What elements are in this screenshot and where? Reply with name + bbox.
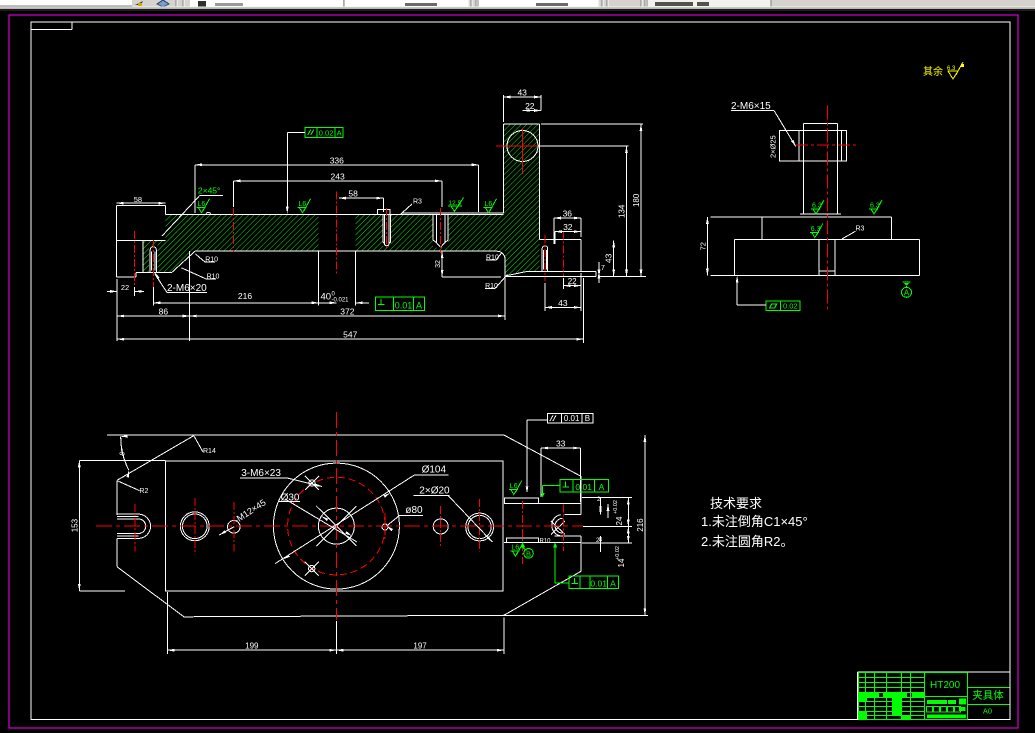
svg-text:B: B [585, 414, 590, 423]
svg-text:36: 36 [563, 209, 573, 219]
svg-text:-0.021: -0.021 [332, 298, 350, 304]
svg-text:547: 547 [343, 330, 357, 340]
svg-text:2×Ø25: 2×Ø25 [769, 135, 778, 158]
svg-text:43: 43 [604, 253, 614, 263]
svg-text:L6: L6 [198, 201, 206, 208]
svg-text:+0.02: +0.02 [615, 546, 621, 560]
svg-text:R10: R10 [540, 539, 552, 545]
svg-text:58: 58 [134, 195, 142, 204]
svg-text:2.未注圆角R2。: 2.未注圆角R2。 [701, 534, 793, 549]
svg-text:2×45°: 2×45° [198, 185, 221, 195]
svg-text:216: 216 [238, 291, 252, 301]
svg-text:33: 33 [556, 439, 566, 449]
svg-text:B: B [526, 550, 531, 559]
svg-text:R2: R2 [139, 488, 148, 495]
svg-text:243: 243 [331, 171, 345, 181]
svg-text:A: A [337, 129, 342, 138]
svg-text:0.01: 0.01 [590, 579, 607, 589]
svg-text:0.02: 0.02 [783, 302, 798, 311]
svg-text:R3: R3 [856, 226, 865, 233]
svg-text:A: A [599, 482, 605, 492]
svg-text:R3: R3 [413, 198, 422, 205]
svg-text:32: 32 [435, 260, 442, 268]
svg-text:336: 336 [330, 155, 344, 165]
svg-text:372: 372 [340, 307, 354, 317]
svg-text:HT200: HT200 [930, 680, 960, 691]
svg-text:+0.02: +0.02 [613, 500, 619, 514]
svg-text:2×Ø20: 2×Ø20 [419, 486, 450, 497]
svg-text:22: 22 [121, 283, 129, 292]
svg-text:43: 43 [517, 88, 527, 98]
svg-text:86: 86 [159, 307, 169, 317]
svg-text:A: A [416, 301, 422, 311]
svg-text:199: 199 [245, 642, 259, 651]
svg-text:A: A [904, 288, 910, 297]
svg-text:153: 153 [70, 518, 79, 532]
svg-text:0.01: 0.01 [395, 301, 413, 311]
svg-text:0.02: 0.02 [319, 129, 334, 138]
svg-text:其余: 其余 [923, 65, 943, 78]
svg-text:32: 32 [563, 222, 573, 232]
svg-text:58: 58 [348, 189, 358, 199]
svg-text:180: 180 [632, 193, 641, 207]
svg-text:22: 22 [568, 277, 577, 286]
svg-text:Ø104: Ø104 [422, 465, 447, 476]
svg-text:43: 43 [558, 298, 568, 308]
svg-text:L6: L6 [511, 545, 519, 552]
svg-text:夹具体: 夹具体 [972, 688, 1004, 701]
svg-text:1.未注倒角C1×45°: 1.未注倒角C1×45° [701, 514, 808, 529]
svg-text:134: 134 [618, 204, 627, 218]
svg-text:7: 7 [601, 265, 605, 272]
svg-text:技术要求: 技术要求 [710, 496, 762, 511]
svg-text:L6: L6 [299, 201, 307, 208]
svg-text:0.01: 0.01 [564, 414, 580, 423]
svg-text:216: 216 [636, 518, 645, 532]
svg-text:72: 72 [698, 242, 707, 250]
svg-text:ø80: ø80 [405, 505, 423, 516]
svg-text:R14: R14 [203, 448, 216, 455]
svg-text:A: A [610, 579, 616, 589]
svg-text:22: 22 [525, 101, 535, 111]
svg-text:L6: L6 [485, 201, 493, 208]
svg-text:40: 40 [321, 292, 332, 303]
svg-text:197: 197 [413, 642, 427, 651]
svg-text:0.01: 0.01 [575, 482, 592, 492]
svg-text:A0: A0 [983, 706, 992, 715]
svg-text:24: 24 [615, 516, 624, 525]
svg-text:L6: L6 [510, 483, 518, 490]
